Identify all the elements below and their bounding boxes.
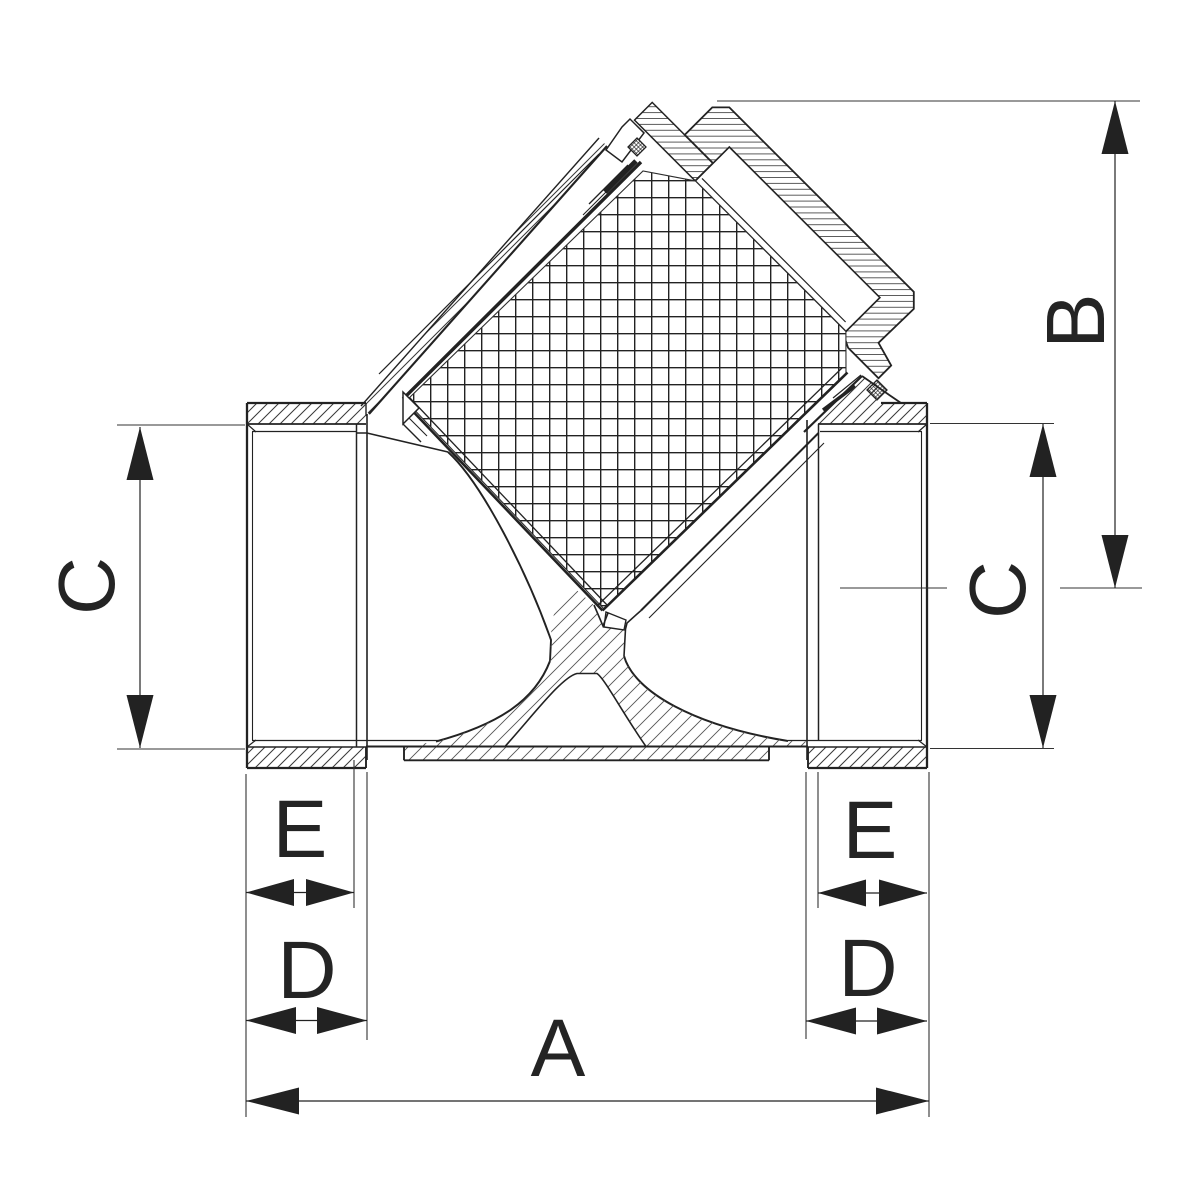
svg-text:C: C xyxy=(42,557,131,615)
svg-text:A: A xyxy=(531,1003,586,1094)
svg-text:D: D xyxy=(838,923,897,1014)
svg-text:E: E xyxy=(843,785,898,876)
svg-text:E: E xyxy=(273,784,328,875)
svg-text:D: D xyxy=(277,925,336,1016)
svg-text:B: B xyxy=(1029,293,1122,348)
svg-text:C: C xyxy=(953,561,1042,619)
